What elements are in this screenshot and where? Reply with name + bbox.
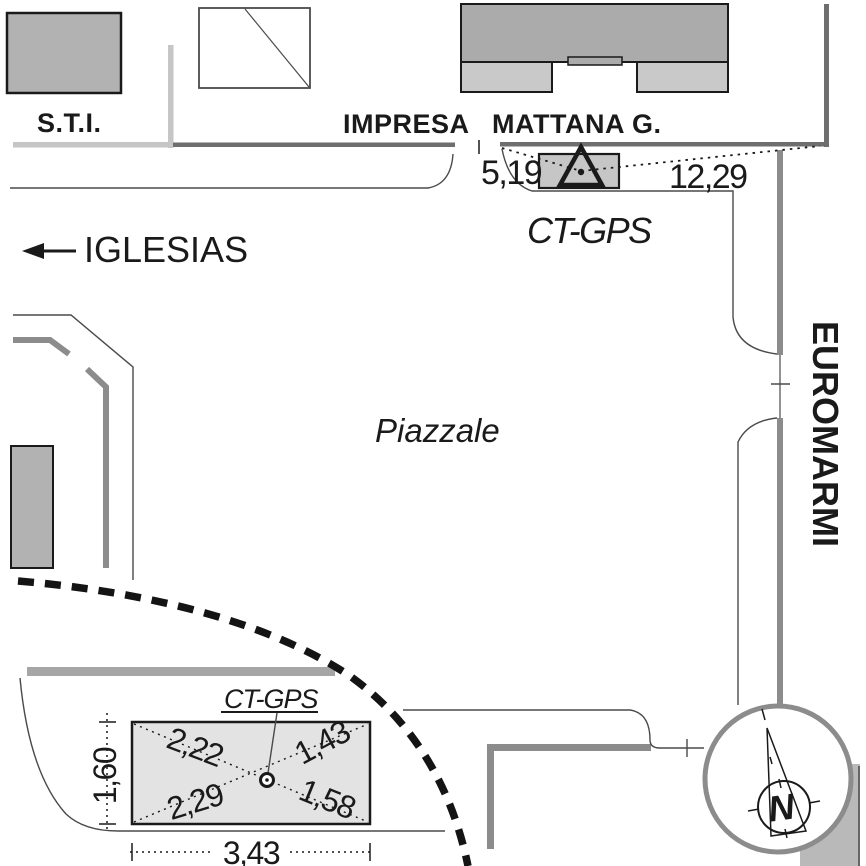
label-mattana: MATTANA G. [492,109,661,139]
station-center-dot [578,169,584,175]
label-iglesias: IGLESIAS [84,229,248,270]
road-lbar-horizontal [487,744,651,751]
road-top-dark-left-segment [173,143,455,148]
road-top-left-light [13,142,170,148]
building-mattana-wing-right [637,62,728,92]
label-impresa: IMPRESA [343,109,470,139]
building-mattana-main [461,4,728,62]
label-distance-right: 12,29 [669,158,747,196]
label-sti: S.T.I. [37,108,102,138]
curb-left-gray-lower [87,369,106,568]
inset-point-label: CT-GPS [224,684,319,714]
road-side-street-light [168,45,174,148]
inset-point-dot [265,778,269,782]
road-euromarmi-lower [777,418,783,705]
building-left-lower [11,446,53,568]
curb-street-top [10,154,453,188]
buildings-layer [7,4,728,568]
arrow-head [22,243,44,259]
station-group [502,146,820,188]
label-distance-left: 5,19 [481,154,542,192]
road-top-dark-right-segment [500,142,824,147]
road-euromarmi-upper [777,150,783,355]
building-sti [7,13,121,93]
curb-left-gray-upper [13,340,69,354]
building-mattana-wing-left [461,62,552,92]
iglesias-arrow-icon [22,243,76,259]
road-lbar-vertical [487,744,494,849]
inset-dim-width: 3,43 [223,835,280,866]
inset-dim-height: 1,60 [87,747,123,804]
label-piazzale: Piazzale [375,412,500,449]
road-top-right-vertical [824,4,829,147]
label-euromarmi: EUROMARMI [805,321,846,547]
building-mattana-notch [568,57,622,65]
site-sketch-drawing: N S.T.I. IMPRESA MATTANA G. 5,19 12,29 C… [0,0,866,866]
label-station-name: CT-GPS [527,210,652,251]
curb-bottom-right [403,710,704,748]
inset-top-gray-bar [27,667,335,676]
curb-right-lower [738,418,777,705]
site-sketch-page: N S.T.I. IMPRESA MATTANA G. 5,19 12,29 C… [0,0,866,866]
compass-group: N [705,706,860,866]
